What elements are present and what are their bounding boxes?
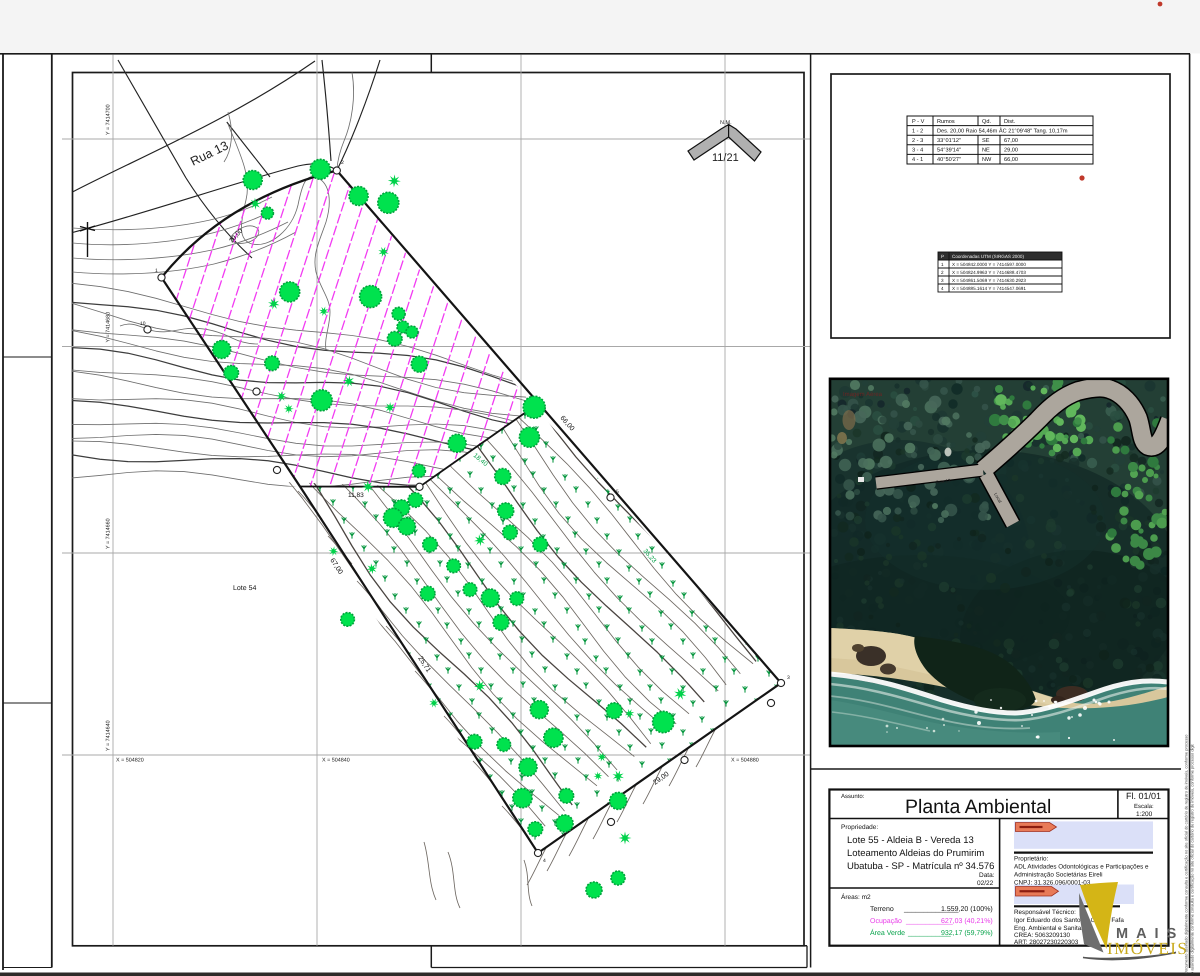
svg-text:Coordenadas UTM (SIRGAS 2000): Coordenadas UTM (SIRGAS 2000) <box>952 254 1024 259</box>
svg-text:X = 504820: X = 504820 <box>116 758 144 764</box>
svg-text:3 - 4: 3 - 4 <box>912 148 923 154</box>
svg-text:Áreas: m2: Áreas: m2 <box>841 893 871 901</box>
svg-text:Lote 55 - Aldeia B - Vereda 13: Lote 55 - Aldeia B - Vereda 13 <box>847 835 974 846</box>
svg-text:Fl. 01/01: Fl. 01/01 <box>1126 791 1161 801</box>
svg-text:Escala:: Escala: <box>1134 803 1154 810</box>
svg-text:N.M.: N.M. <box>720 120 732 126</box>
svg-text:1: 1 <box>941 262 944 267</box>
svg-text:3: 3 <box>941 278 944 283</box>
svg-text:2: 2 <box>941 270 944 275</box>
svg-text:X = 504885.1614 Y = 7414547.0: X = 504885.1614 Y = 7414547.0691 <box>952 286 1026 291</box>
svg-text:02/22: 02/22 <box>977 880 994 887</box>
svg-text:Administração Societárias Eire: Administração Societárias Eireli <box>1014 872 1103 879</box>
svg-text:Propriedade:: Propriedade: <box>841 824 878 831</box>
svg-text:Planta Ambiental: Planta Ambiental <box>905 796 1051 818</box>
svg-text:33°01'12": 33°01'12" <box>937 138 961 144</box>
svg-text:Área Verde: Área Verde <box>870 928 905 937</box>
svg-text:P - V: P - V <box>912 119 925 125</box>
svg-text:10: 10 <box>140 321 146 327</box>
svg-text:Rumos: Rumos <box>937 119 955 125</box>
svg-text:4: 4 <box>941 286 944 291</box>
svg-text:CNPJ: 31.326.096/0001-03: CNPJ: 31.326.096/0001-03 <box>1014 880 1091 887</box>
svg-text:67,00: 67,00 <box>1004 138 1018 144</box>
svg-text:2: 2 <box>341 160 344 166</box>
svg-text:3: 3 <box>787 675 790 681</box>
svg-text:Lote 54: Lote 54 <box>233 585 256 592</box>
svg-text:Ocupação: Ocupação <box>870 917 902 925</box>
svg-text:4 - 1: 4 - 1 <box>912 157 923 163</box>
svg-text:o assinado digitalmente confor: o assinado digitalmente conforme consult… <box>1190 743 1195 974</box>
svg-text:932,17 (59,79%): 932,17 (59,79%) <box>941 929 993 937</box>
svg-text:X = 504861.5069 Y = 7414630.2: X = 504861.5069 Y = 7414630.2923 <box>952 278 1026 283</box>
svg-text:X = 504880: X = 504880 <box>731 758 759 764</box>
svg-text:Dist.: Dist. <box>1004 118 1016 125</box>
svg-text:IMÓVEIS: IMÓVEIS <box>1107 939 1188 958</box>
svg-text:Y = 7414640: Y = 7414640 <box>106 720 112 751</box>
svg-text:P: P <box>941 254 944 259</box>
svg-text:11/21: 11/21 <box>712 152 739 164</box>
svg-text:X = 504842.0000 Y = 7414597.0: X = 504842.0000 Y = 7414597.0000 <box>952 262 1026 267</box>
svg-text:54°39'14": 54°39'14" <box>937 148 961 154</box>
svg-text:Documento assinado digitalment: Documento assinado digitalmente conforme… <box>1184 734 1189 974</box>
svg-text:1.559,20 (100%): 1.559,20 (100%) <box>941 905 993 913</box>
svg-text:29,00: 29,00 <box>1004 148 1018 154</box>
svg-text:Des. 20,00 Raio 54,46m ÂC 21°0: Des. 20,00 Raio 54,46m ÂC 21°09'48" Tang… <box>937 127 1068 134</box>
svg-text:1: 1 <box>155 268 158 274</box>
svg-text:1 - 2: 1 - 2 <box>912 128 923 134</box>
svg-text:Ubatuba - SP - Matrícula nº 34: Ubatuba - SP - Matrícula nº 34.576 <box>847 861 994 872</box>
svg-text:40°50'27": 40°50'27" <box>937 157 961 163</box>
svg-text:Terreno: Terreno <box>870 906 894 913</box>
svg-text:Qd.: Qd. <box>982 118 991 125</box>
svg-text:11,83: 11,83 <box>348 492 364 499</box>
svg-text:NW: NW <box>982 157 992 163</box>
svg-text:X = 504824.9963 Y = 7414688.4: X = 504824.9963 Y = 7414688.4703 <box>952 270 1026 275</box>
svg-text:CREA: 5063209130: CREA: 5063209130 <box>1014 932 1071 939</box>
svg-text:Assunto:: Assunto: <box>841 793 865 800</box>
svg-text:5: 5 <box>616 489 619 495</box>
svg-text:627,03 (40,21%): 627,03 (40,21%) <box>941 917 993 925</box>
svg-text:X = 504840: X = 504840 <box>322 758 350 764</box>
svg-text:66,00: 66,00 <box>1004 157 1018 163</box>
svg-text:Loteamento Aldeias do Prumirim: Loteamento Aldeias do Prumirim <box>847 848 984 859</box>
svg-text:Data:: Data: <box>979 872 995 879</box>
svg-text:Y = 7414700: Y = 7414700 <box>106 104 112 135</box>
svg-text:Responsável Técnico:: Responsável Técnico: <box>1014 909 1076 916</box>
svg-text:ART: 28027230220303: ART: 28027230220303 <box>1014 939 1079 946</box>
svg-text:4: 4 <box>543 858 546 864</box>
svg-text:1:200: 1:200 <box>1136 811 1153 818</box>
svg-text:Y = 7414660: Y = 7414660 <box>106 518 112 549</box>
svg-text:2 - 3: 2 - 3 <box>912 138 923 144</box>
svg-text:NE: NE <box>982 148 990 154</box>
svg-text:Imagem Aérea: Imagem Aérea <box>843 391 883 398</box>
svg-text:ADL Atividades Odontológicas e: ADL Atividades Odontológicas e Participa… <box>1014 864 1149 871</box>
svg-text:Proprietário:: Proprietário: <box>1014 856 1049 863</box>
svg-text:SE: SE <box>982 138 990 144</box>
